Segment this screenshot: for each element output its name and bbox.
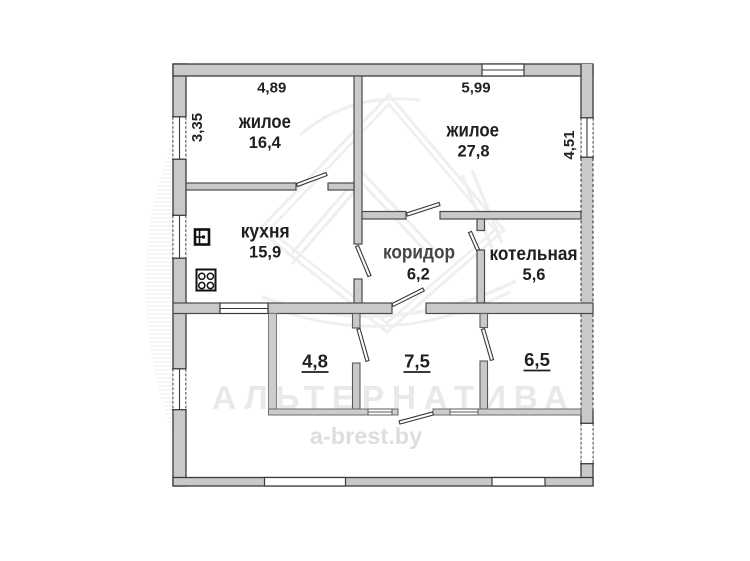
svg-text:коридор: коридор bbox=[383, 242, 455, 264]
svg-text:кухня: кухня bbox=[241, 222, 290, 243]
svg-text:3,35: 3,35 bbox=[189, 113, 206, 142]
svg-text:a-brest.by: a-brest.by bbox=[310, 423, 422, 449]
svg-text:27,8: 27,8 bbox=[457, 143, 489, 161]
svg-text:6,2: 6,2 bbox=[407, 266, 430, 284]
svg-text:котельная: котельная bbox=[490, 243, 578, 265]
svg-text:4,8: 4,8 bbox=[302, 351, 328, 372]
svg-text:4,89: 4,89 bbox=[257, 80, 286, 97]
svg-text:6,5: 6,5 bbox=[524, 349, 550, 370]
svg-text:жилое: жилое bbox=[238, 112, 291, 133]
svg-text:5,99: 5,99 bbox=[461, 80, 490, 97]
svg-text:4,51: 4,51 bbox=[561, 130, 578, 159]
svg-text:5,6: 5,6 bbox=[523, 266, 546, 284]
svg-text:15,9: 15,9 bbox=[249, 244, 281, 262]
svg-text:16,4: 16,4 bbox=[249, 134, 282, 152]
svg-text:жилое: жилое bbox=[446, 120, 499, 141]
svg-text:7,5: 7,5 bbox=[404, 351, 430, 372]
